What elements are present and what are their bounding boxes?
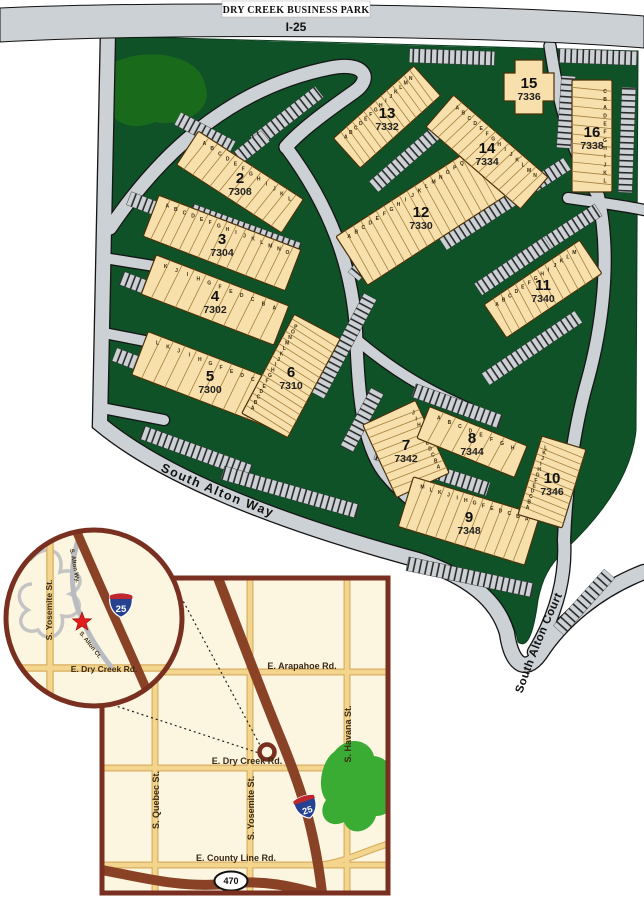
unit-letter: A [437, 416, 441, 422]
building-number: 13 [379, 105, 396, 122]
unit-letter: K [418, 188, 422, 194]
building-address: 7336 [517, 91, 541, 103]
dry-creek-business-park-map: ABCDEFGHIJKL27308ABCDEFGHIJKLMNO37304KJI… [0, 0, 644, 899]
unit-letter: A [273, 306, 277, 312]
unit-letter: G [217, 223, 221, 229]
unit-letter: J [411, 193, 414, 199]
unit-letter: C [183, 210, 187, 216]
unit-letter: J [243, 233, 246, 239]
unit-letter: K [166, 345, 170, 351]
unit-letter: G [207, 281, 211, 287]
unit-letter: F [603, 130, 606, 136]
unit-letter: H [603, 146, 607, 152]
unit-letter: A [495, 302, 499, 308]
unit-letter: D [515, 289, 519, 295]
svg-text:470: 470 [223, 876, 238, 886]
unit-letter: G [268, 373, 272, 379]
unit-letter: C [354, 125, 358, 131]
building-number: 6 [287, 364, 295, 381]
unit-letter: F [534, 478, 537, 484]
unit-letter: B [210, 146, 214, 152]
building-number: 8 [468, 430, 476, 447]
unit-letter: H [271, 368, 275, 374]
parking-row [559, 49, 637, 66]
unit-letter: F [528, 280, 531, 286]
unit-letter: L [430, 487, 433, 493]
unit-letter: L [603, 179, 606, 185]
unit-letter: A [455, 105, 459, 111]
building-number: 10 [544, 470, 561, 487]
unit-letter: B [461, 111, 465, 117]
unit-letter: H [464, 498, 468, 504]
unit-letter: M [420, 485, 424, 491]
building-number: 2 [236, 170, 244, 187]
unit-letter: H [257, 176, 261, 182]
unit-letter: F [369, 112, 372, 118]
unit-letter: L [260, 240, 263, 246]
building-address: 7338 [580, 140, 604, 152]
unit-letter: O [446, 170, 450, 176]
unit-letter: J [510, 152, 513, 158]
unit-letter: F [383, 211, 386, 217]
unit-letter: H [511, 445, 515, 451]
unit-letter: J [177, 349, 180, 355]
unit-letter: F [482, 503, 485, 509]
unit-letter: N [409, 76, 413, 82]
svg-text:25: 25 [116, 604, 127, 615]
inset-street-label: E. Dry Creek Rd. [71, 664, 138, 674]
unit-letter: C [218, 151, 222, 157]
unit-letter: B [174, 207, 178, 213]
unit-letter: L [522, 163, 525, 169]
unit-letter: F [219, 365, 222, 371]
street-label: E. Dry Creek Rd. [212, 756, 283, 766]
building-address: 7332 [375, 121, 399, 133]
building-number: 15 [521, 75, 538, 92]
unit-letter: J [541, 456, 544, 462]
unit-letter: D [240, 293, 244, 299]
building-number: 3 [218, 231, 226, 248]
unit-letter: O [291, 330, 295, 336]
unit-letter: N [533, 173, 537, 179]
park-title: DRY CREEK BUSINESS PARK [223, 5, 370, 16]
unit-letter: A [437, 464, 441, 470]
unit-letter: K [164, 264, 168, 270]
unit-letter: K [280, 192, 284, 198]
unit-letter: N [439, 175, 443, 181]
unit-letter: L [156, 341, 159, 347]
unit-letter: K [542, 451, 546, 457]
unit-letter: M [285, 341, 289, 347]
unit-letter: D [473, 121, 477, 127]
building-number: 5 [206, 368, 214, 385]
unit-letter: A [251, 405, 255, 411]
parking-row [409, 49, 494, 66]
unit-letter: D [499, 509, 503, 515]
route-470-shield: 470 [215, 872, 248, 891]
unit-letter: H [196, 276, 200, 282]
street-label: S. Havana St. [343, 705, 353, 762]
unit-letter: B [603, 97, 607, 103]
unit-letter: D [603, 113, 607, 119]
unit-letter: D [359, 121, 363, 127]
unit-letter: D [259, 389, 263, 395]
unit-letter: M [572, 250, 576, 256]
building-address: 7348 [457, 525, 481, 537]
unit-letter: D [369, 220, 373, 226]
unit-letter: A [203, 141, 207, 147]
unit-letter: A [347, 234, 351, 240]
unit-letter: L [399, 85, 402, 91]
unit-letter: M [432, 179, 436, 185]
unit-letter: J [604, 162, 607, 168]
building-number: 14 [479, 140, 496, 157]
building-7338: CBADEFGHIJKL167338 [572, 80, 612, 192]
unit-letter: B [262, 301, 266, 307]
unit-letter: K [394, 89, 398, 95]
unit-letter: A [165, 204, 169, 210]
dry-creek-business-park-page: ABCDEFGHIJKL27308ABCDEFGHIJKLMNO37304KJI… [0, 0, 644, 899]
unit-letter: A [344, 134, 348, 140]
unit-letter: C [508, 293, 512, 299]
unit-letter: B [254, 400, 258, 406]
unit-letter: J [175, 268, 178, 274]
building-address: 7302 [203, 304, 227, 316]
unit-letter: F [490, 437, 493, 443]
unit-letter: J [277, 357, 280, 363]
building-number: 16 [584, 124, 601, 141]
street-label: S. Quebec St. [151, 771, 161, 829]
building-number: 9 [465, 509, 473, 526]
street-label: S. Yosemite St. [246, 776, 256, 840]
unit-letter: G [500, 441, 504, 447]
unit-letter: L [566, 254, 569, 260]
unit-letter: G [536, 472, 540, 478]
unit-letter: B [502, 298, 506, 304]
unit-letter: C [251, 297, 255, 303]
unit-letter: K [280, 351, 284, 357]
unit-letter: C [251, 377, 255, 383]
unit-letter: D [226, 156, 230, 162]
street-label: E. Arapahoe Rd. [267, 661, 336, 671]
building-number: 12 [413, 204, 430, 221]
building-address: 7310 [279, 380, 303, 392]
unit-letter: M [268, 243, 272, 249]
unit-letter: F [486, 131, 489, 137]
unit-letter: M [404, 80, 408, 86]
unit-letter: H [537, 467, 541, 473]
unit-letter: C [257, 395, 261, 401]
unit-letter: B [349, 130, 353, 136]
unit-letter: L [288, 197, 291, 203]
unit-letter: J [447, 493, 450, 499]
building-address: 7340 [531, 293, 555, 305]
unit-letter: K [438, 490, 442, 496]
building-address: 7346 [540, 486, 564, 498]
inset-locator-circle: 25S. Yosemite St.E. Dry Creek Rd.S. Alto… [6, 530, 182, 706]
building-address: 7344 [460, 446, 484, 458]
unit-letter: J [273, 187, 276, 193]
unit-letter: D [531, 489, 535, 495]
street-label: E. County Line Rd. [196, 853, 276, 863]
unit-letter: F [209, 220, 212, 226]
building-address: 7342 [394, 453, 418, 465]
building-number: 4 [211, 288, 220, 305]
unit-letter: F [266, 378, 269, 384]
unit-letter: M [527, 168, 531, 174]
unit-letter: G [208, 361, 212, 367]
unit-letter: H [397, 202, 401, 208]
i25-label: I-25 [286, 20, 307, 34]
unit-letter: L [544, 445, 547, 451]
unit-letter: D [240, 373, 244, 379]
unit-letter: O [286, 250, 290, 256]
unit-letter: C [507, 511, 511, 517]
building-address: 7334 [475, 156, 499, 168]
building-address: 7330 [409, 220, 433, 232]
unit-letter: H [198, 357, 202, 363]
building-address: 7308 [228, 186, 252, 198]
unit-letter: J [389, 94, 392, 100]
unit-letter: N [288, 335, 292, 341]
unit-letter: L [283, 346, 286, 352]
unit-letter: G [374, 107, 378, 113]
unit-letter: K [251, 237, 255, 243]
unit-letter: B [527, 500, 531, 506]
unit-letter: G [473, 501, 477, 507]
unit-letter: G [389, 207, 393, 213]
unit-letter: B [448, 420, 452, 426]
building-address: 7304 [210, 247, 234, 259]
unit-letter: G [249, 171, 253, 177]
unit-letter: N [277, 247, 281, 253]
building-address: 7300 [198, 384, 222, 396]
building-number: 11 [535, 277, 551, 294]
unit-letter: A [526, 505, 530, 511]
unit-letter: K [560, 259, 564, 265]
unit-letter: C [603, 89, 607, 95]
unit-letter: Q [460, 161, 464, 167]
unit-letter: C [529, 494, 533, 500]
unit-letter: L [425, 184, 428, 190]
building-number: 7 [402, 437, 410, 454]
unit-letter: C [458, 424, 462, 430]
unit-letter: K [515, 157, 519, 163]
unit-letter: C [467, 116, 471, 122]
inset-street-label: S. Yosemite St. [44, 580, 54, 641]
unit-letter: K [603, 171, 607, 177]
unit-letter: J [554, 263, 557, 269]
unit-letter: B [354, 230, 358, 236]
unit-letter: A [603, 105, 607, 111]
top-highway-band: I-25DRY CREEK BUSINESS PARK [0, 1, 644, 48]
unit-letter: C [361, 225, 365, 231]
unit-letter: H [497, 142, 501, 148]
unit-letter: D [191, 214, 195, 220]
